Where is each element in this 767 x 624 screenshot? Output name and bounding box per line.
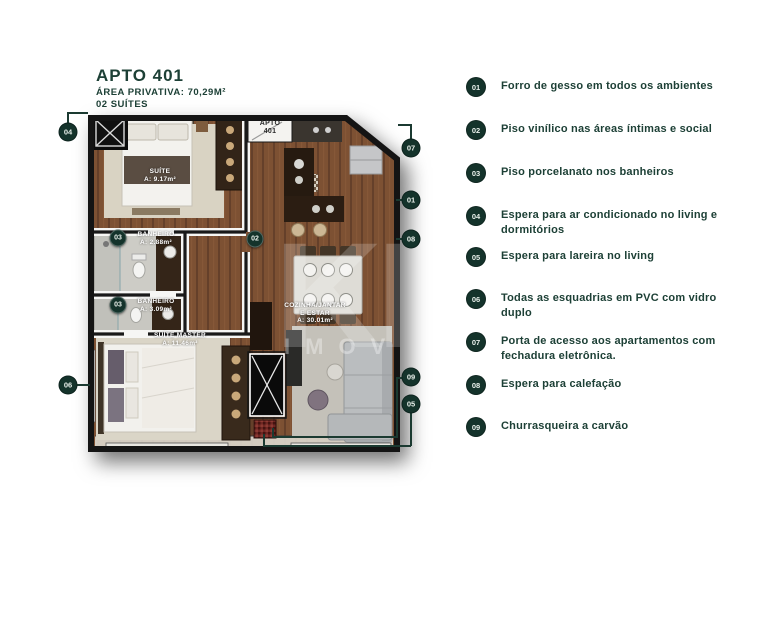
connector-09b bbox=[396, 377, 398, 437]
legend-badge-07: 07 bbox=[466, 332, 486, 352]
suite-label: SUÍTE A: 9.17m² bbox=[128, 168, 192, 183]
page: APTO 401 ÁREA PRIVATIVA: 70,29M² 02 SUÍT… bbox=[0, 0, 767, 624]
connector-06 bbox=[77, 384, 90, 386]
tv-cabinet bbox=[250, 302, 272, 350]
connector-05a bbox=[410, 413, 412, 446]
rail-badge-04: 04 bbox=[59, 123, 78, 142]
plan-badge-02: 02 bbox=[247, 231, 264, 248]
legend-item-01: 01 Forro de gesso em todos os ambientes bbox=[466, 77, 731, 97]
legend-badge-03: 03 bbox=[466, 163, 486, 183]
floor-plan-drawing bbox=[88, 112, 400, 452]
legend-item-02: 02 Piso vinílico nas áreas íntimas e soc… bbox=[466, 120, 731, 140]
legend-text-08: Espera para calefação bbox=[501, 375, 729, 392]
connector-05c bbox=[263, 434, 265, 446]
cozinha-label: COZINHA/JANTAR E ESTAR A: 30.01m² bbox=[280, 302, 350, 325]
fridge bbox=[350, 146, 382, 174]
connector-04b bbox=[68, 112, 88, 114]
legend-badge-01: 01 bbox=[466, 77, 486, 97]
private-area-line: ÁREA PRIVATIVA: 70,29M² bbox=[96, 87, 226, 98]
legend-text-03: Piso porcelanato nos banheiros bbox=[501, 163, 729, 180]
legend-item-05: 05 Espera para lareira no living bbox=[466, 247, 731, 267]
legend-text-07: Porta de acesso aos apartamentos com fec… bbox=[501, 332, 729, 363]
connector-07 bbox=[410, 124, 412, 139]
legend-badge-05: 05 bbox=[466, 247, 486, 267]
legend-item-03: 03 Piso porcelanato nos banheiros bbox=[466, 163, 731, 183]
door-label: APTO 401 bbox=[248, 120, 292, 135]
rail-badge-07: 07 bbox=[402, 139, 421, 158]
legend-text-01: Forro de gesso em todos os ambientes bbox=[501, 77, 729, 94]
legend-text-02: Piso vinílico nas áreas íntimas e social bbox=[501, 120, 729, 137]
bar-stool bbox=[292, 224, 305, 237]
banheiro2-label: BANHEIRO A: 3.09m² bbox=[124, 298, 188, 313]
elevator-shaft bbox=[92, 116, 128, 150]
legend-text-09: Churrasqueira a carvão bbox=[501, 417, 729, 434]
legend-item-07: 07 Porta de acesso aos apartamentos com … bbox=[466, 332, 731, 363]
plan-badge-03-banheiro1: 03 bbox=[110, 230, 127, 247]
banheiro1-label: BANHEIRO A: 2.88m² bbox=[124, 231, 188, 246]
rail-badge-09: 09 bbox=[402, 368, 421, 387]
rail-badge-01: 01 bbox=[402, 191, 421, 210]
rail-badge-05: 05 bbox=[402, 395, 421, 414]
suite-master-label: SUÍTE MASTER A: 11.46m² bbox=[140, 332, 220, 347]
bar-stool bbox=[314, 224, 327, 237]
connector-09c bbox=[272, 436, 398, 438]
legend-text-04: Espera para ar condicionado no living e … bbox=[501, 206, 729, 237]
duct-shaft bbox=[248, 352, 286, 418]
legend-text-06: Todas as esquadrias em PVC com vidro dup… bbox=[501, 289, 729, 320]
connector-07b bbox=[398, 124, 411, 126]
suites-line: 02 SUÍTES bbox=[96, 99, 226, 110]
armchair bbox=[308, 390, 328, 410]
legend-badge-02: 02 bbox=[466, 120, 486, 140]
apartment-title: APTO 401 bbox=[96, 66, 226, 86]
master-wardrobe bbox=[222, 346, 250, 440]
master-bed bbox=[98, 342, 196, 434]
tv-console bbox=[286, 330, 302, 386]
legend-item-06: 06 Todas as esquadrias em PVC com vidro … bbox=[466, 289, 731, 320]
legend-text-05: Espera para lareira no living bbox=[501, 247, 729, 264]
legend-item-08: 08 Espera para calefação bbox=[466, 375, 731, 395]
plan-badge-03-banheiro2: 03 bbox=[110, 297, 127, 314]
suite-wardrobe bbox=[216, 118, 244, 190]
legend-item-09: 09 Churrasqueira a carvão bbox=[466, 417, 731, 437]
title-block: APTO 401 ÁREA PRIVATIVA: 70,29M² 02 SUÍT… bbox=[96, 66, 226, 110]
rail-badge-08: 08 bbox=[402, 230, 421, 249]
connector-05b bbox=[263, 445, 411, 447]
legend-badge-09: 09 bbox=[466, 417, 486, 437]
legend-badge-06: 06 bbox=[466, 289, 486, 309]
nightstand bbox=[196, 120, 208, 132]
legend-badge-08: 08 bbox=[466, 375, 486, 395]
legend-badge-04: 04 bbox=[466, 206, 486, 226]
connector-09d bbox=[272, 428, 274, 437]
suite-bed bbox=[120, 118, 194, 215]
coffee-table bbox=[327, 364, 343, 380]
legend-item-04: 04 Espera para ar condicionado no living… bbox=[466, 206, 731, 237]
rail-badge-06: 06 bbox=[59, 376, 78, 395]
floor-plan: KP IMOV APTO 401 SUÍTE A: 9.17m² BANHEIR… bbox=[88, 112, 400, 452]
